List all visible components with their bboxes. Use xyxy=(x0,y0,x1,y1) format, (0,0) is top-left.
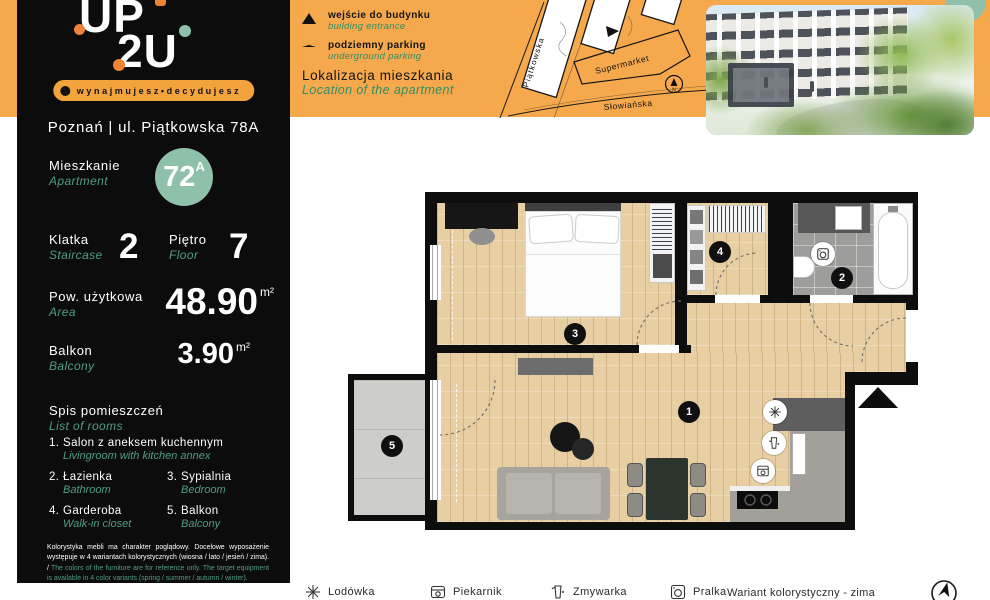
staircase-pl: Klatka xyxy=(49,232,103,247)
oven-label: Piekarnik xyxy=(453,586,502,598)
floor-value: 7 xyxy=(229,227,248,267)
pergola xyxy=(728,63,794,107)
floor-label: Piętro Floor xyxy=(169,232,207,262)
legend-entrance: wejście do budynku building entrance xyxy=(302,10,430,32)
entrance-marker xyxy=(858,387,898,408)
parking-triangle-icon xyxy=(302,43,316,47)
area-value-wrap: 48.90m² xyxy=(165,281,274,323)
rooms-header: Spis pomieszczeń List of rooms xyxy=(49,403,163,433)
balcony-value: 3.90 xyxy=(178,338,234,370)
balcony-area: 5 xyxy=(348,374,435,521)
footer-dishwasher: Zmywarka xyxy=(550,584,627,600)
balcony-pl: Balkon xyxy=(49,343,95,358)
area-en: Area xyxy=(49,305,143,319)
dishwasher-icon xyxy=(550,584,566,600)
apartment-number-circle: 72 A xyxy=(155,148,213,206)
address: Poznań | ul. Piątkowska 78A xyxy=(17,119,290,136)
staircase-value: 2 xyxy=(119,227,138,267)
apartment-label: Mieszkanie Apartment xyxy=(49,158,120,188)
floor-en: Floor xyxy=(169,248,207,262)
apartment-number: 72 xyxy=(163,148,195,206)
washer-plan-icon xyxy=(811,242,835,266)
room-item-4: 4. Garderoba Walk-in closet xyxy=(49,505,131,530)
legend-entrance-pl: wejście do budynku xyxy=(328,10,430,21)
compass-n-label: N xyxy=(672,88,676,94)
footer-oven: Piekarnik xyxy=(430,584,502,600)
compass-needle-icon xyxy=(671,78,678,86)
legend-location: Lokalizacja mieszkania Location of the a… xyxy=(302,68,454,97)
person xyxy=(810,81,814,92)
dishwasher-plan-icon xyxy=(762,431,786,455)
logo-square-orange xyxy=(155,0,166,6)
fridge-label: Lodówka xyxy=(328,586,375,598)
color-variant-label: Wariant kolorystyczny - zima xyxy=(700,587,875,599)
room-badge-balcony: 5 xyxy=(381,435,403,457)
footer-fridge: Lodówka xyxy=(305,584,375,600)
apartment-label-en: Apartment xyxy=(49,174,120,188)
logo-dot-orange2 xyxy=(113,59,125,71)
floor-pl: Piętro xyxy=(169,232,207,247)
room-item-5: 5. Balkon Balcony xyxy=(167,505,220,530)
legend-parking-pl: podziemny parking xyxy=(328,40,426,51)
room-badge-living: 1 xyxy=(678,401,700,423)
map-compass: N xyxy=(666,76,683,94)
fridge-plan-icon xyxy=(763,400,787,424)
room-badge-bedroom: 3 xyxy=(564,323,586,345)
disclaimer-en: The colors of the furniture are for refe… xyxy=(47,565,269,582)
building-photo xyxy=(706,5,974,135)
room-item-2: 2. Łazienka Bathroom xyxy=(49,471,112,496)
legend-entrance-en: building entrance xyxy=(328,21,430,32)
legend-parking-en: underground parking xyxy=(328,51,426,62)
brand-tagline-pill: wynajmujesz•decydujesz xyxy=(53,80,254,101)
disclaimer: Kolorystyka mebli ma charakter poglądowy… xyxy=(47,543,269,584)
area-value: 48.90 xyxy=(165,281,258,322)
pill-dot-icon xyxy=(60,86,70,96)
brand-tagline: wynajmujesz•decydujesz xyxy=(77,86,241,96)
area-pl: Pow. użytkowa xyxy=(49,289,143,304)
room-badge-bath: 2 xyxy=(831,267,853,289)
legend-parking: podziemny parking underground parking xyxy=(302,40,426,62)
room-badge-closet: 4 xyxy=(709,241,731,263)
entrance-triangle-icon xyxy=(302,13,316,24)
balcony-label: Balkon Balcony xyxy=(49,343,95,373)
oven-plan-icon xyxy=(751,459,775,483)
floor-plan: 1 2 3 4 xyxy=(425,192,918,530)
apartment-label-pl: Mieszkanie xyxy=(49,158,120,173)
logo-dot-orange xyxy=(74,24,85,35)
area-unit: m² xyxy=(260,285,274,299)
door-arcs xyxy=(425,192,918,530)
area-label: Pow. użytkowa Area xyxy=(49,289,143,319)
map-supermarket-label: Supermarket xyxy=(594,53,650,76)
staircase-label: Klatka Staircase xyxy=(49,232,103,262)
compass-icon xyxy=(930,579,958,600)
balcony-value-wrap: 3.90m² xyxy=(178,338,250,371)
dishwasher-label: Zmywarka xyxy=(573,586,627,598)
room-item-3: 3. Sypialnia Bedroom xyxy=(167,471,231,496)
sidebar: UP 2U wynajmujesz•decydujesz Poznań | ul… xyxy=(17,0,290,583)
apartment-suffix: A xyxy=(195,159,204,174)
room-item-1: 1. Salon z aneksem kuchennym Livingroom … xyxy=(49,437,223,462)
legend-location-en: Location of the apartment xyxy=(302,83,454,97)
person xyxy=(764,77,768,88)
legend-location-pl: Lokalizacja mieszkania xyxy=(302,68,454,83)
rooms-header-pl: Spis pomieszczeń xyxy=(49,403,163,418)
rooms-header-en: List of rooms xyxy=(49,419,163,433)
snowflake-icon xyxy=(305,584,321,600)
balcony-unit: m² xyxy=(236,340,250,354)
staircase-en: Staircase xyxy=(49,248,103,262)
balcony-en: Balcony xyxy=(49,359,95,373)
logo-line2: 2U xyxy=(117,24,178,78)
site-map: Piątkowska Supermarket Słowiańska N xyxy=(478,0,710,118)
oven-icon xyxy=(430,584,446,600)
flyer-root: wejście do budynku building entrance pod… xyxy=(0,0,990,600)
logo-dot-teal xyxy=(179,25,191,37)
washer-icon xyxy=(670,584,686,600)
